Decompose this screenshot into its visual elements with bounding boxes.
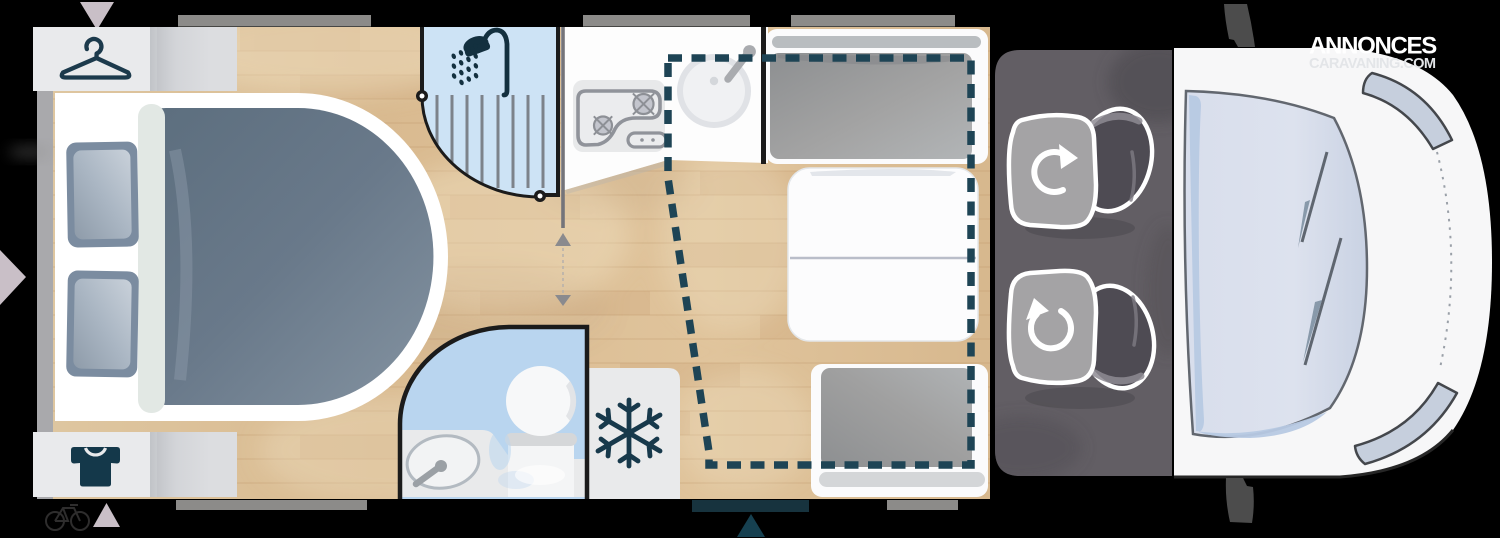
- svg-text:CARAVANING.COM: CARAVANING.COM: [1309, 56, 1436, 72]
